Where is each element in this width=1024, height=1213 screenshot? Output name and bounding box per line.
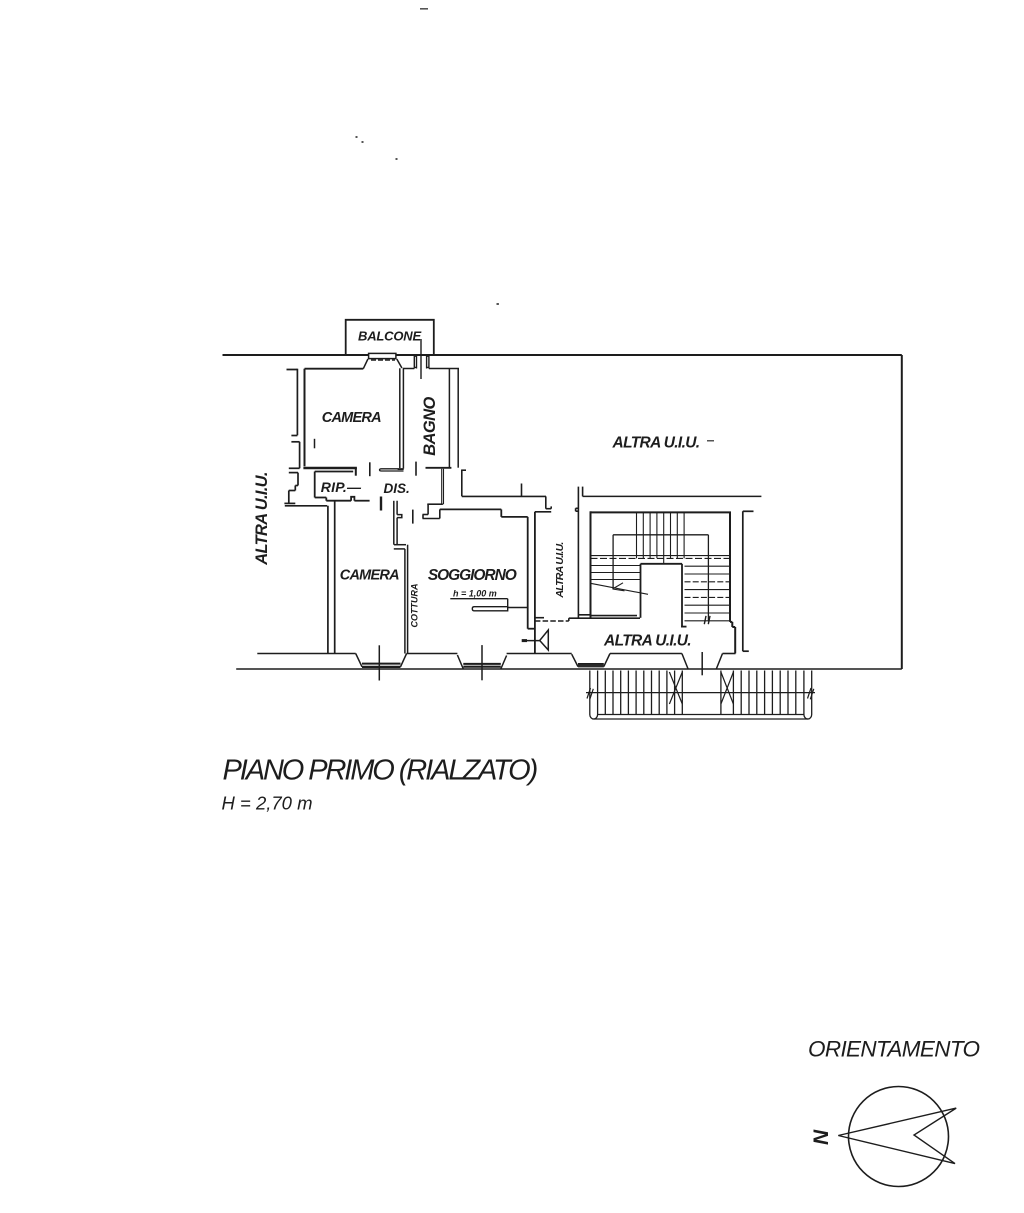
svg-text:h = 1,00 m: h = 1,00 m (453, 588, 497, 598)
svg-text:BAGNO: BAGNO (421, 397, 439, 456)
svg-text:H = 2,70 m: H = 2,70 m (222, 792, 313, 813)
svg-text:SOGGIORNO: SOGGIORNO (428, 567, 517, 584)
svg-text:RIP.—: RIP.— (321, 479, 362, 495)
svg-text:CAMERA: CAMERA (322, 410, 381, 426)
svg-text:ALTRA U.I.U.: ALTRA U.I.U. (603, 633, 691, 650)
svg-text:ALTRA U.I.U.: ALTRA U.I.U. (554, 542, 566, 599)
svg-text:PIANO PRIMO (RIALZATO): PIANO PRIMO (RIALZATO) (223, 755, 537, 787)
svg-text:ORIENTAMENTO: ORIENTAMENTO (808, 1037, 980, 1062)
svg-text:DIS.: DIS. (384, 481, 410, 496)
svg-text:CAMERA: CAMERA (340, 568, 399, 584)
svg-text:ALTRA U.I.U.: ALTRA U.I.U. (253, 472, 271, 566)
svg-text:COTTURA: COTTURA (410, 584, 420, 628)
svg-text:BALCONE: BALCONE (358, 329, 421, 344)
svg-text:ALTRA U.I.U.: ALTRA U.I.U. (612, 435, 700, 452)
svg-text:N: N (809, 1129, 832, 1145)
